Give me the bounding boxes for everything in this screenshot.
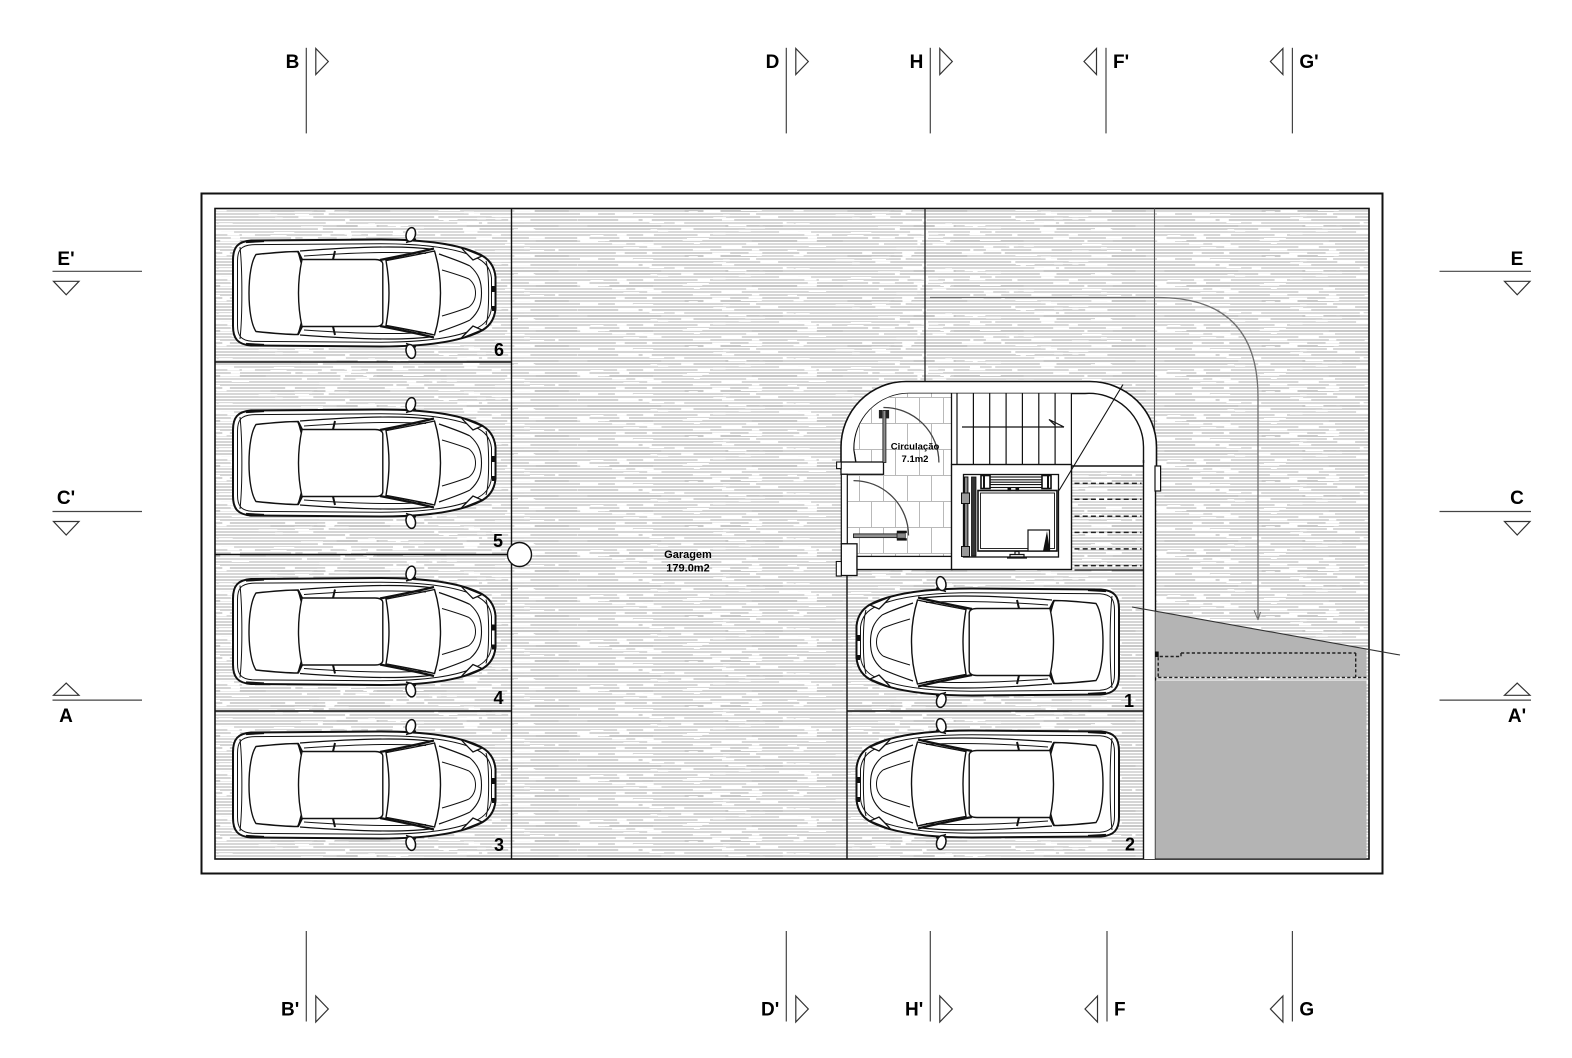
svg-text:Circulação: Circulação xyxy=(891,442,940,453)
svg-text:1: 1 xyxy=(1124,691,1134,711)
svg-text:7.1m2: 7.1m2 xyxy=(902,454,929,465)
svg-text:B': B' xyxy=(281,1000,299,1021)
svg-text:4: 4 xyxy=(493,688,503,708)
svg-text:H: H xyxy=(910,52,924,73)
svg-text:Garagem: Garagem xyxy=(664,549,712,561)
svg-text:C: C xyxy=(1510,488,1524,509)
svg-text:F: F xyxy=(1114,1000,1126,1021)
svg-text:3: 3 xyxy=(494,835,504,855)
svg-text:E': E' xyxy=(57,249,74,270)
svg-text:D: D xyxy=(766,52,780,73)
svg-text:F': F' xyxy=(1113,52,1129,73)
svg-text:B: B xyxy=(286,52,300,73)
svg-text:E: E xyxy=(1511,249,1524,270)
svg-text:A': A' xyxy=(1508,706,1526,727)
svg-text:5: 5 xyxy=(493,531,503,551)
svg-text:2: 2 xyxy=(1125,835,1135,855)
svg-text:A: A xyxy=(59,706,73,727)
svg-text:C': C' xyxy=(57,488,75,509)
svg-text:179.0m2: 179.0m2 xyxy=(666,563,709,575)
svg-text:G': G' xyxy=(1299,52,1318,73)
svg-text:H': H' xyxy=(905,1000,923,1021)
svg-text:G: G xyxy=(1299,1000,1314,1021)
svg-text:6: 6 xyxy=(494,340,504,360)
svg-text:D': D' xyxy=(761,1000,779,1021)
